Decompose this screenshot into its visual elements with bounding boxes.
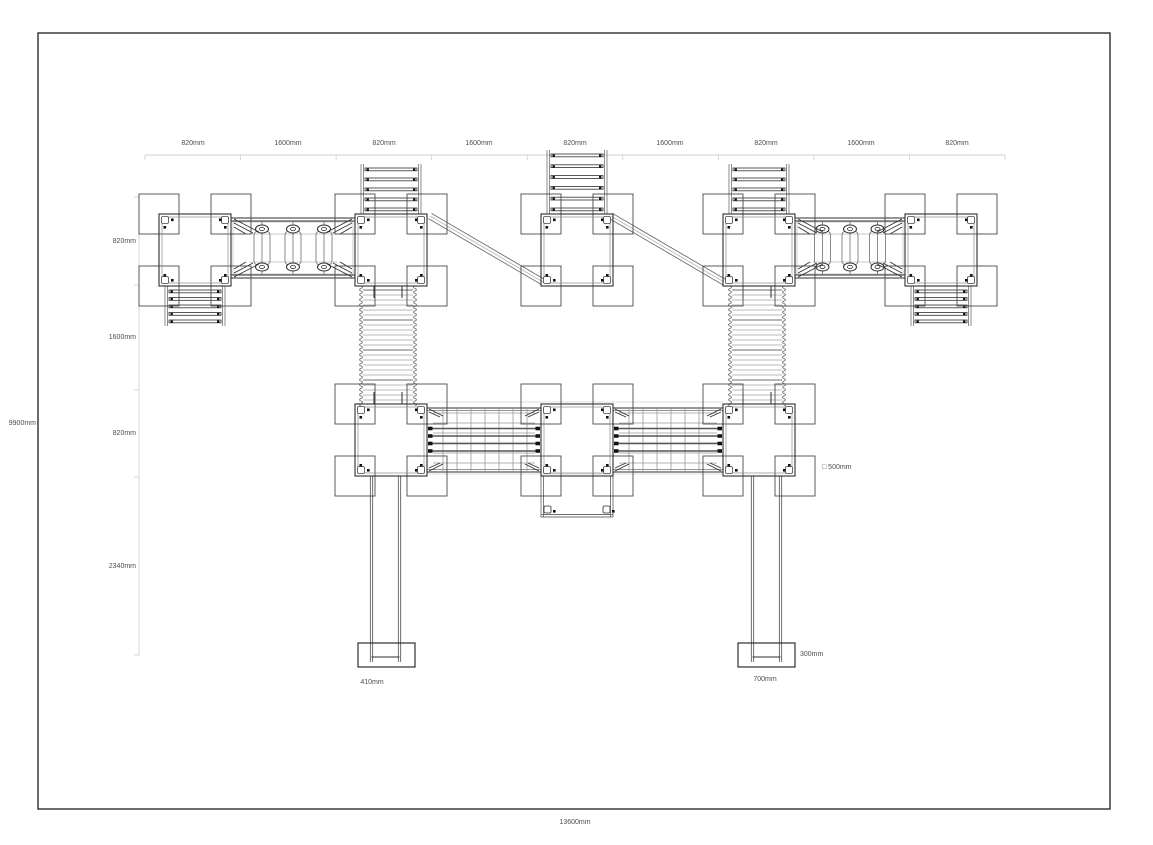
dim-label-top-4: 1600mm bbox=[457, 139, 501, 148]
platform-extension bbox=[541, 476, 615, 517]
dim-label-left-2: 1600mm bbox=[94, 333, 136, 342]
dim-label-top-2: 1600mm bbox=[266, 139, 310, 148]
footing bbox=[738, 643, 795, 667]
slide-poles bbox=[751, 476, 781, 662]
tower-mid-3 bbox=[703, 384, 815, 496]
dim-label-left-4: 2340mm bbox=[94, 562, 136, 571]
callout-footing-left-width: 410mm bbox=[347, 678, 397, 687]
tower-mid-2 bbox=[521, 384, 633, 496]
footing bbox=[358, 643, 415, 667]
dim-label-left-1: 820mm bbox=[94, 237, 136, 246]
ladder bbox=[361, 164, 421, 214]
dim-label-top-8: 1600mm bbox=[839, 139, 883, 148]
dimension-line-left bbox=[134, 197, 139, 655]
dim-label-left-3: 820mm bbox=[94, 429, 136, 438]
dim-label-top-7: 820mm bbox=[744, 139, 788, 148]
callout-post-square: □ 500mm bbox=[822, 463, 852, 472]
sheet-border bbox=[38, 33, 1110, 809]
diagonal-beam bbox=[609, 213, 725, 284]
bridge-net bbox=[427, 408, 541, 472]
diagonal-beam bbox=[428, 213, 544, 284]
dim-label-overall-width: 13600mm bbox=[543, 818, 607, 827]
ladder bbox=[729, 164, 789, 214]
callout-footing-right-depth: 300mm bbox=[800, 650, 823, 659]
drawing-sheet: 820mm 1600mm 820mm 1600mm 820mm 1600mm 8… bbox=[0, 0, 1153, 845]
tower-top-5 bbox=[885, 194, 997, 306]
slide-poles bbox=[370, 476, 400, 662]
bridge-planks bbox=[231, 218, 355, 278]
dim-label-top-9: 820mm bbox=[935, 139, 979, 148]
tower-top-1 bbox=[139, 194, 251, 306]
bridge-flexible bbox=[729, 286, 786, 406]
ladder bbox=[547, 150, 607, 214]
dim-label-top-6: 1600mm bbox=[648, 139, 692, 148]
callout-footing-right-width: 700mm bbox=[738, 675, 792, 684]
bridge-planks bbox=[795, 218, 905, 278]
bridge-flexible bbox=[360, 286, 417, 406]
bridge-net bbox=[613, 408, 723, 472]
dim-label-overall-height: 9900mm bbox=[2, 419, 36, 428]
dim-label-top-1: 820mm bbox=[171, 139, 215, 148]
site-plan-drawing bbox=[0, 0, 1153, 845]
dim-label-top-3: 820mm bbox=[362, 139, 406, 148]
tower-mid-1 bbox=[335, 384, 447, 496]
dim-label-top-5: 820mm bbox=[553, 139, 597, 148]
